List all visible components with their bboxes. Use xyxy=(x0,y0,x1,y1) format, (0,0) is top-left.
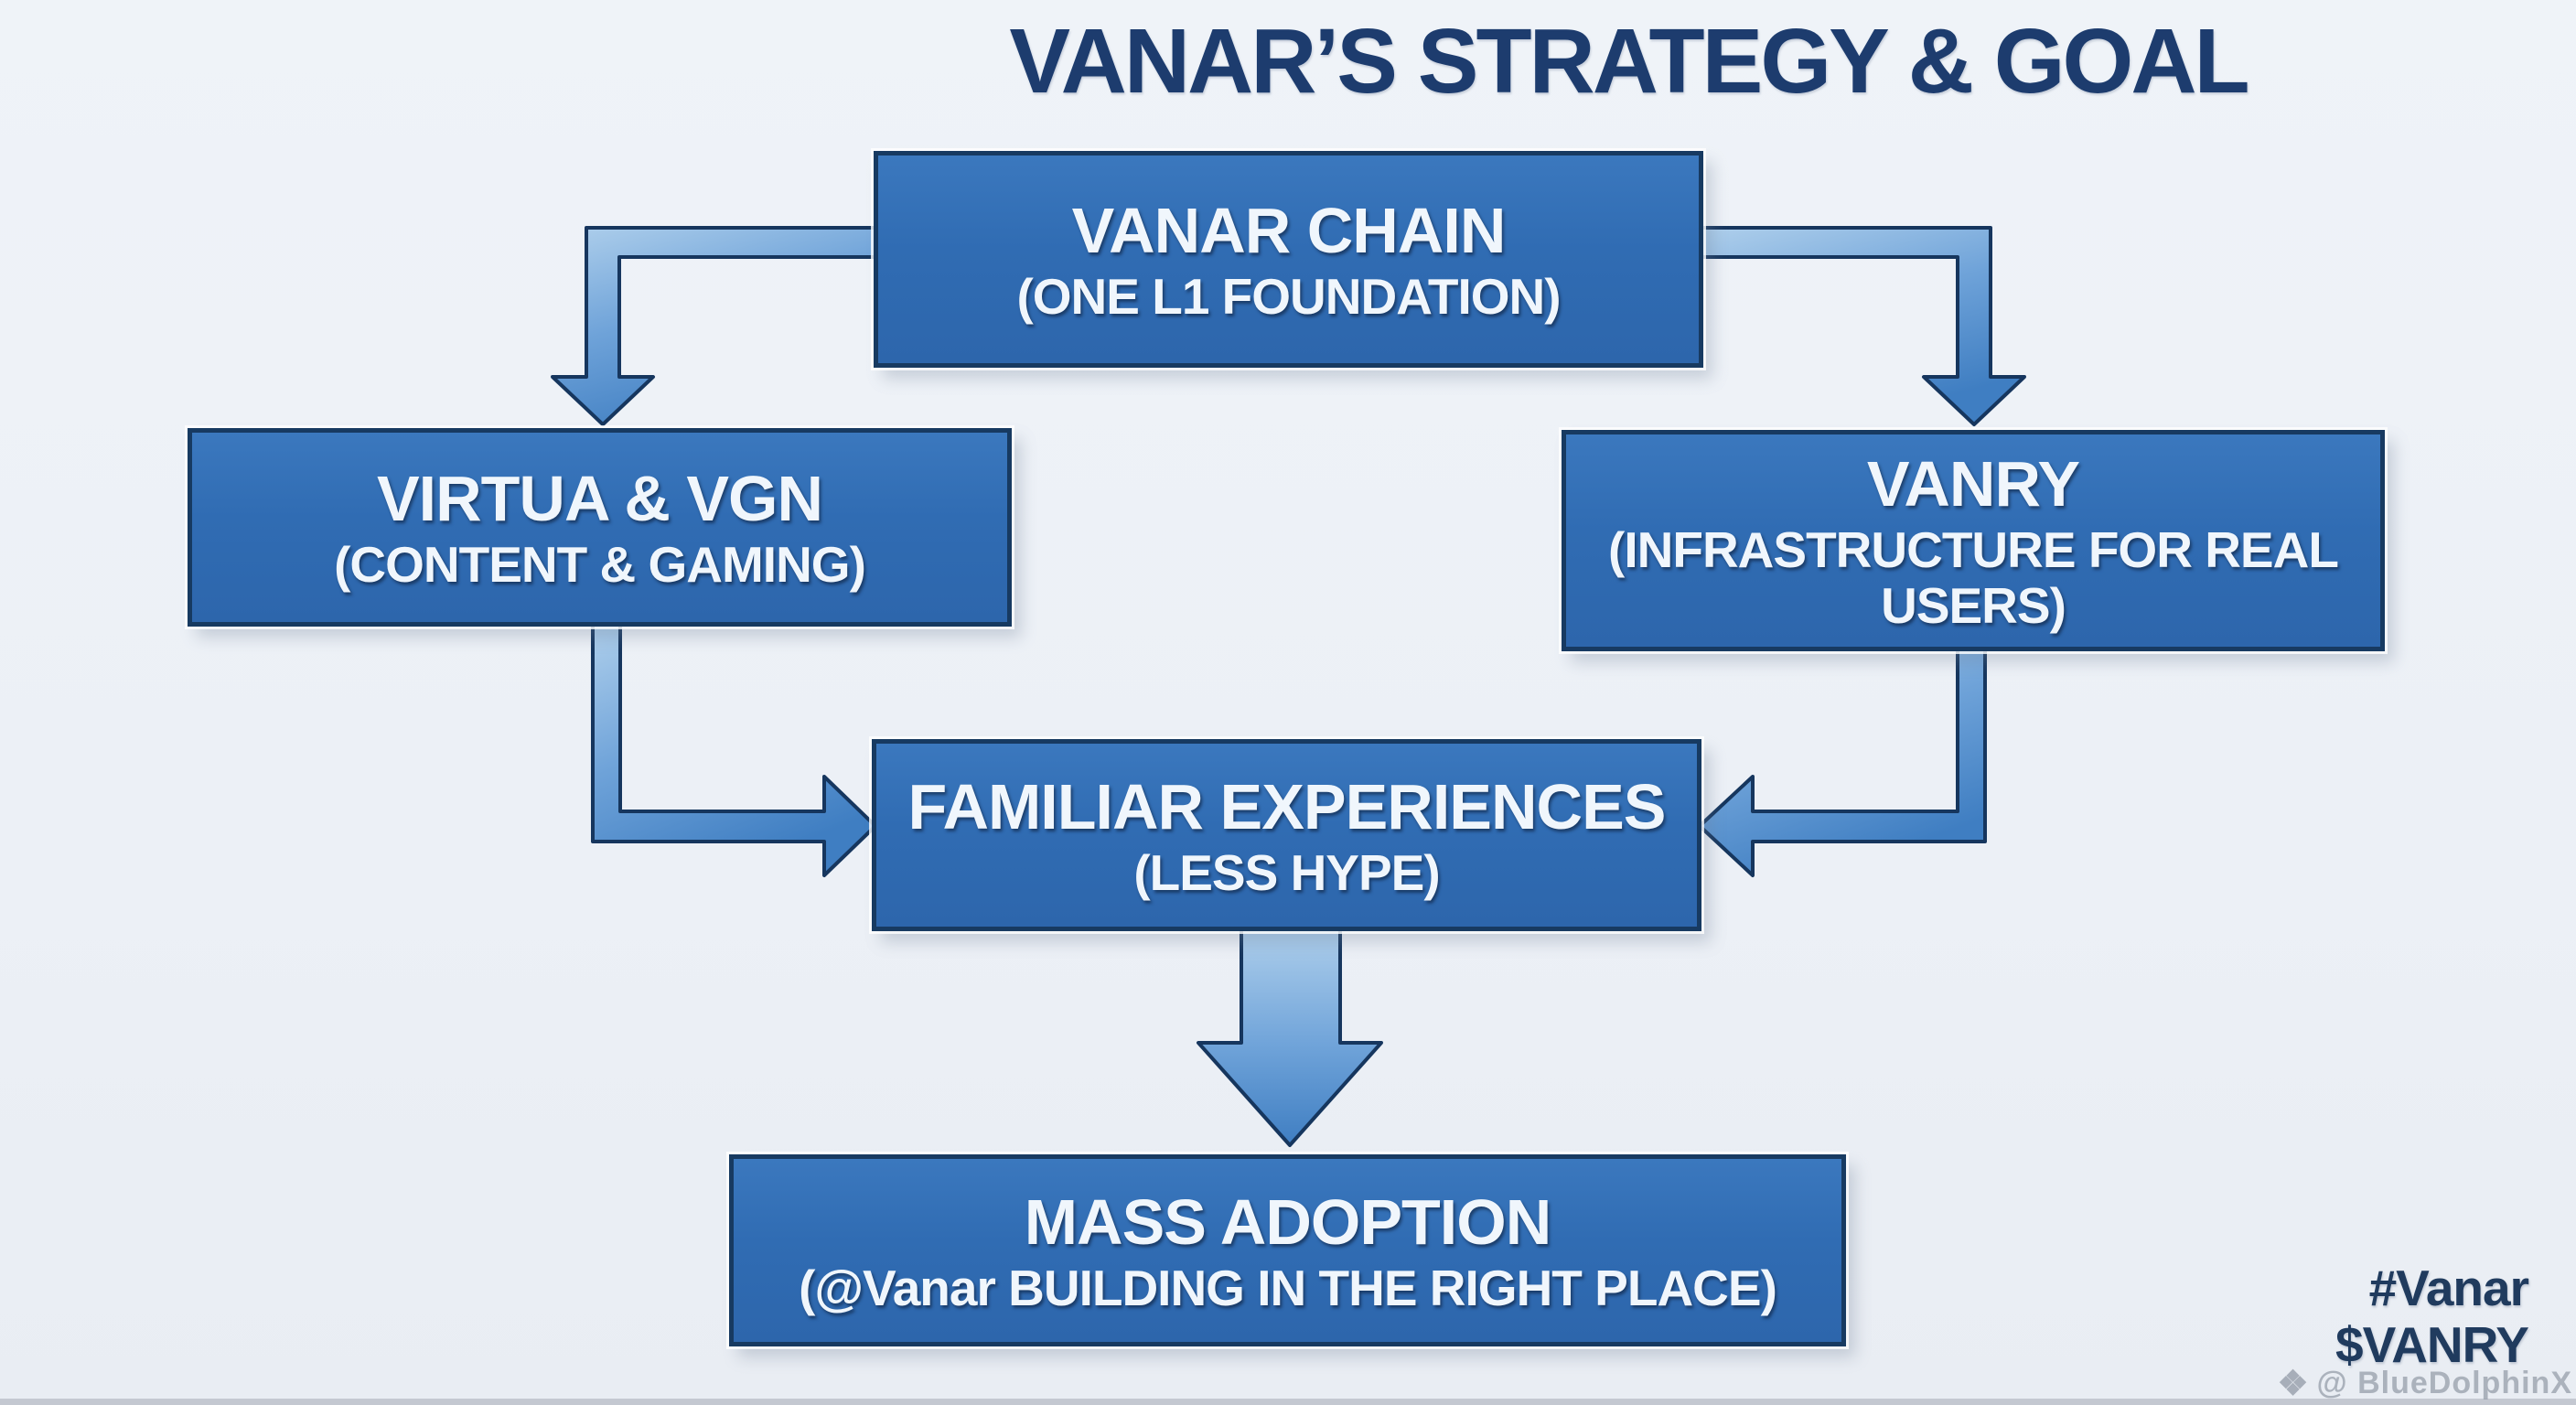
vanar-chain-subtitle: (ONE L1 FOUNDATION) xyxy=(1016,269,1560,326)
vanar-chain-box: VANAR CHAIN (ONE L1 FOUNDATION) xyxy=(874,151,1703,368)
vanry-box: VANRY (INFRASTRUCTURE FOR REAL USERS) xyxy=(1562,430,2385,651)
arrow-chain-to-virtua xyxy=(553,228,880,424)
watermark: ❖ @ BlueDolphinX xyxy=(2277,1363,2572,1404)
page-background: VANAR’S STRATEGY & GOAL VANAR CHAIN (ONE… xyxy=(0,0,2576,1405)
familiar-experiences-box: FAMILIAR EXPERIENCES (LESS HYPE) xyxy=(872,739,1701,931)
bottom-edge-shadow xyxy=(0,1399,2576,1405)
vanry-subtitle: (INFRASTRUCTURE FOR REAL USERS) xyxy=(1607,522,2339,635)
virtua-vgn-box: VIRTUA & VGN (CONTENT & GAMING) xyxy=(188,428,1012,627)
vanar-chain-label: VANAR CHAIN xyxy=(1072,193,1506,269)
familiar-experiences-label: FAMILIAR EXPERIENCES xyxy=(908,769,1666,845)
hashtag-vanar: #Vanar xyxy=(2335,1260,2528,1317)
mass-adoption-label: MASS ADOPTION xyxy=(1025,1185,1551,1260)
watermark-text: @ BlueDolphinX xyxy=(2317,1366,2572,1401)
footer-tags: #Vanar $VANRY xyxy=(2335,1260,2528,1373)
virtua-vgn-label: VIRTUA & VGN xyxy=(377,461,822,537)
vanry-label: VANRY xyxy=(1867,446,2079,522)
familiar-experiences-subtitle: (LESS HYPE) xyxy=(1133,845,1439,902)
mass-adoption-box: MASS ADOPTION (@Vanar BUILDING IN THE RI… xyxy=(729,1154,1846,1346)
virtua-vgn-subtitle: (CONTENT & GAMING) xyxy=(334,537,865,594)
arrow-chain-to-vanry xyxy=(1697,228,2024,424)
diamond-icon: ❖ xyxy=(2277,1363,2309,1404)
arrow-virtua-to-familiar xyxy=(593,622,875,875)
arrow-familiar-to-adoption xyxy=(1198,926,1381,1145)
arrow-vanry-to-familiar xyxy=(1700,645,1985,875)
mass-adoption-subtitle: (@Vanar BUILDING IN THE RIGHT PLACE) xyxy=(799,1260,1776,1317)
page-title: VANAR’S STRATEGY & GOAL xyxy=(1006,9,2250,114)
